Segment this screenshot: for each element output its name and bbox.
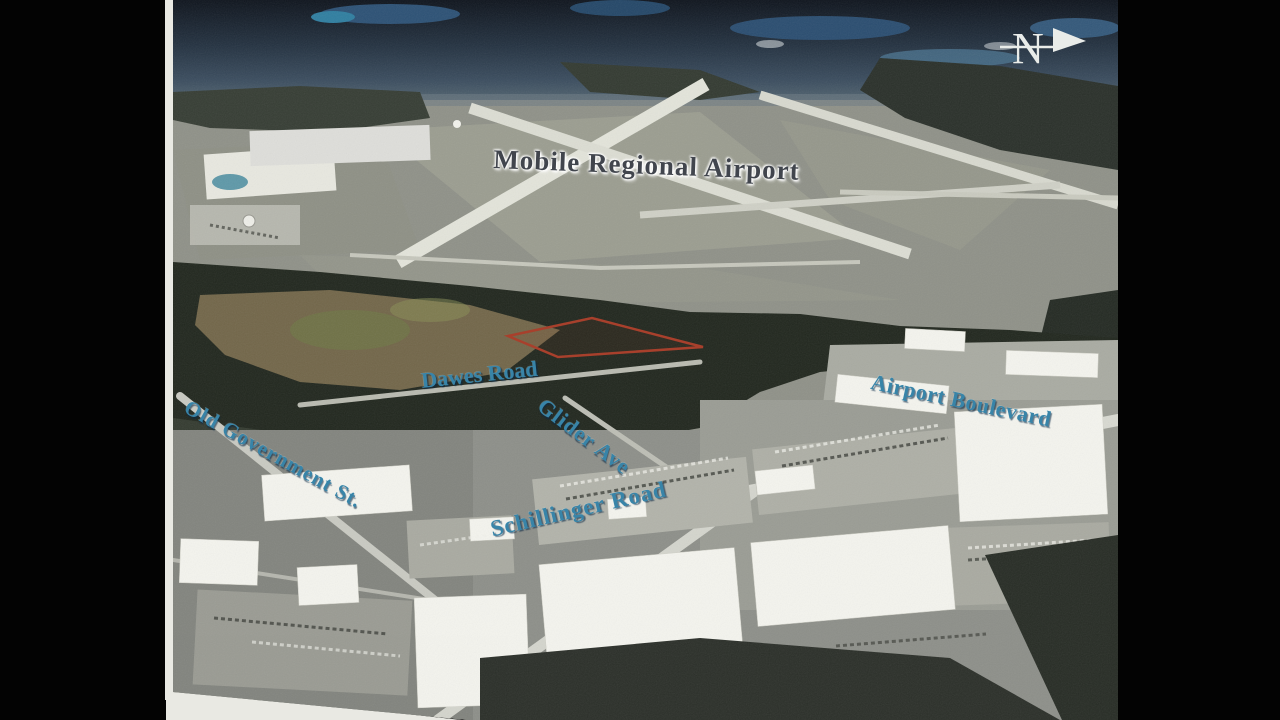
compass-north-letter: N [1012,24,1044,73]
aerial-photo-content [173,0,1120,720]
scanned-aerial-map-page: N Mobile Regional Airport Dawes Road Gli… [0,0,1280,720]
aerial-photo: N [0,0,1280,720]
photo-grain [173,0,1118,720]
